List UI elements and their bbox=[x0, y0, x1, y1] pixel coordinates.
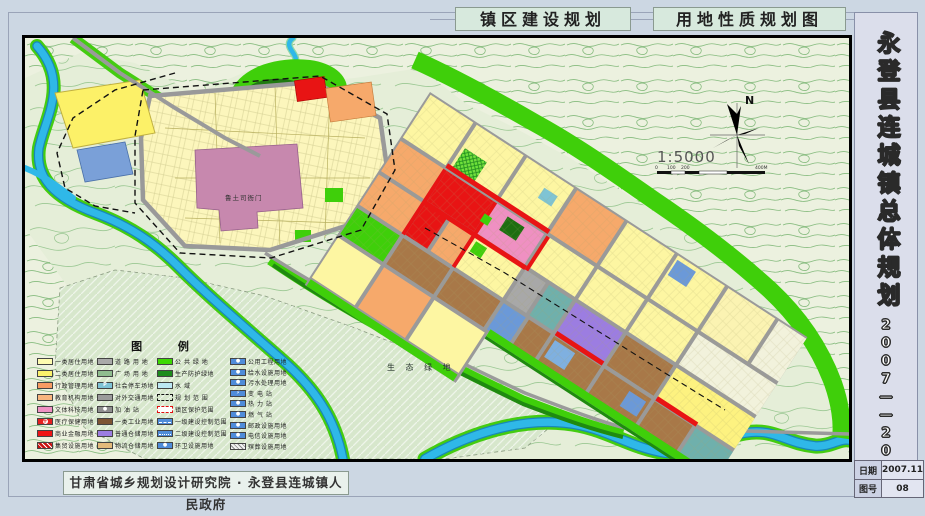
legend-item: +医疗保健用地 bbox=[37, 418, 94, 425]
legend-item: 生产防护绿地 bbox=[157, 370, 227, 377]
planning-map: 鲁土司衙门 bbox=[22, 35, 852, 462]
legend-item-label: 一级建设控制范围 bbox=[175, 417, 227, 426]
legend-item-label: 公用工程用地 bbox=[248, 357, 287, 366]
legend-item: 殡葬设施用地 bbox=[230, 443, 287, 450]
legend-item: ⚡变 电 站 bbox=[230, 390, 287, 397]
legend-item-label: 生产防护绿地 bbox=[175, 369, 214, 378]
legend-item-label: 环卫设施用地 bbox=[175, 441, 214, 450]
legend-item-label: 道 路 用 地 bbox=[115, 357, 148, 366]
legend-item-label: 普通仓储用地 bbox=[115, 429, 154, 438]
legend-item-label: 商业金融用地 bbox=[55, 429, 94, 438]
legend-swatch bbox=[37, 370, 53, 377]
legend-swatch bbox=[97, 442, 113, 449]
legend-swatch bbox=[37, 358, 53, 365]
legend-item-label: 加 油 站 bbox=[115, 405, 139, 414]
legend-item-label: 热 力 站 bbox=[248, 399, 272, 408]
legend-item-label: 教育机构用地 bbox=[55, 393, 94, 402]
legend-item-label: 广 场 用 地 bbox=[115, 369, 148, 378]
legend-item-label: 文体科技用地 bbox=[55, 405, 94, 414]
legend-item: 一类工业用地 bbox=[97, 418, 154, 425]
legend-item-label: 镇区保护范围 bbox=[175, 405, 214, 414]
legend-swatch: P bbox=[97, 382, 113, 389]
legend-item: ●电信设施用地 bbox=[230, 432, 287, 439]
legend-item-label: 邮政设施用地 bbox=[248, 421, 287, 430]
legend-item: 物流仓储用地 bbox=[97, 442, 154, 449]
legend-item: 普通仓储用地 bbox=[97, 430, 154, 437]
legend-swatch bbox=[230, 443, 246, 450]
legend-item-label: 公 共 绿 地 bbox=[175, 357, 208, 366]
legend-item-label: 对外交通用地 bbox=[115, 393, 154, 402]
legend-item: 二类居住用地 bbox=[37, 370, 94, 377]
plan-sheet: { "header": { "title1": "镇区建设规划", "title… bbox=[0, 0, 925, 500]
legend-item: 镇区保护范围 bbox=[157, 406, 227, 413]
plan-title-vertical: 永登县连城镇总体规划 bbox=[869, 31, 903, 311]
legend-swatch bbox=[37, 442, 53, 449]
sheet-title-left: 镇区建设规划 bbox=[455, 7, 631, 31]
legend-item-label: 医疗保健用地 bbox=[55, 417, 94, 426]
legend-item: 教育机构用地 bbox=[37, 394, 94, 401]
legend-swatch: + bbox=[37, 418, 53, 425]
legend-swatch: ● bbox=[230, 369, 246, 376]
heritage-label: 鲁土司衙门 bbox=[225, 193, 263, 202]
sheet-title-right: 用地性质规划图 bbox=[653, 7, 846, 31]
legend-swatch bbox=[97, 430, 113, 437]
legend-item: 二级建设控制范围 bbox=[157, 430, 227, 437]
legend-item: 规 划 范 围 bbox=[157, 394, 227, 401]
legend-swatch bbox=[97, 358, 113, 365]
legend-columns: 一类居住用地二类居住用地行政管理用地教育机构用地文体科技用地+医疗保健用地商业金… bbox=[37, 358, 283, 454]
legend-item: 水 域 bbox=[157, 382, 227, 389]
legend-swatch bbox=[97, 394, 113, 401]
legend-swatch: ● bbox=[97, 406, 113, 413]
legend-item: ●公用工程用地 bbox=[230, 358, 287, 365]
legend-item-label: 变 电 站 bbox=[248, 389, 272, 398]
legend-swatch bbox=[157, 370, 173, 377]
legend: 图 例 一类居住用地二类居住用地行政管理用地教育机构用地文体科技用地+医疗保健用… bbox=[37, 338, 283, 454]
legend-item: 集贸设施用地 bbox=[37, 442, 94, 449]
legend-item: ●邮政设施用地 bbox=[230, 422, 287, 429]
svg-text:0: 0 bbox=[655, 165, 658, 171]
legend-item: 行政管理用地 bbox=[37, 382, 94, 389]
legend-swatch bbox=[37, 406, 53, 413]
legend-column: 一类居住用地二类居住用地行政管理用地教育机构用地文体科技用地+医疗保健用地商业金… bbox=[37, 358, 94, 454]
legend-item: 商业金融用地 bbox=[37, 430, 94, 437]
legend-column: ●公用工程用地●给水设施用地●污水处理用地⚡变 电 站●热 力 站●燃 气 站●… bbox=[230, 358, 287, 454]
svg-text:200: 200 bbox=[681, 165, 690, 171]
legend-item-label: 二级建设控制范围 bbox=[175, 429, 227, 438]
legend-item-label: 集贸设施用地 bbox=[55, 441, 94, 450]
legend-item-label: 社会停车场地 bbox=[115, 381, 154, 390]
date-value: 2007.11 bbox=[881, 460, 924, 479]
legend-item: P社会停车场地 bbox=[97, 382, 154, 389]
eco-green-label: 生 态 绿 地 bbox=[387, 362, 455, 372]
legend-swatch bbox=[37, 394, 53, 401]
legend-item-label: 污水处理用地 bbox=[248, 378, 287, 387]
legend-item-label: 规 划 范 围 bbox=[175, 393, 208, 402]
legend-swatch bbox=[157, 358, 173, 365]
legend-swatch bbox=[157, 394, 173, 401]
legend-swatch bbox=[37, 430, 53, 437]
sheet-info-table: 日期 2007.11 图号 08 bbox=[854, 460, 918, 498]
legend-item: 一级建设控制范围 bbox=[157, 418, 227, 425]
sheet-number-label: 图号 bbox=[854, 479, 881, 498]
legend-swatch: ● bbox=[157, 442, 173, 449]
legend-title: 图 例 bbox=[37, 338, 283, 354]
legend-item-label: 物流仓储用地 bbox=[115, 441, 154, 450]
legend-swatch: ● bbox=[230, 422, 246, 429]
legend-item: ●污水处理用地 bbox=[230, 379, 287, 386]
date-label: 日期 bbox=[854, 460, 881, 479]
legend-swatch bbox=[157, 382, 173, 389]
scale-ratio: 1:5000 bbox=[657, 148, 716, 166]
legend-item-label: 殡葬设施用地 bbox=[248, 442, 287, 451]
legend-item-label: 二类居住用地 bbox=[55, 369, 94, 378]
legend-swatch: ● bbox=[230, 358, 246, 365]
legend-swatch bbox=[97, 370, 113, 377]
legend-column: 公 共 绿 地生产防护绿地水 域规 划 范 围镇区保护范围一级建设控制范围二级建… bbox=[157, 358, 227, 454]
legend-swatch bbox=[157, 406, 173, 413]
sheet-number-value: 08 bbox=[881, 479, 924, 498]
legend-item: 道 路 用 地 bbox=[97, 358, 154, 365]
legend-item-label: 一类工业用地 bbox=[115, 417, 154, 426]
legend-item: 一类居住用地 bbox=[37, 358, 94, 365]
legend-swatch bbox=[97, 418, 113, 425]
legend-swatch: ● bbox=[230, 400, 246, 407]
legend-swatch bbox=[157, 418, 173, 425]
legend-column: 道 路 用 地广 场 用 地P社会停车场地对外交通用地●加 油 站一类工业用地普… bbox=[97, 358, 154, 454]
legend-swatch bbox=[157, 430, 173, 437]
legend-item: ●热 力 站 bbox=[230, 400, 287, 407]
legend-item-label: 电信设施用地 bbox=[248, 431, 287, 440]
legend-swatch: ⚡ bbox=[230, 390, 246, 397]
legend-swatch: ● bbox=[230, 411, 246, 418]
legend-item: ●燃 气 站 bbox=[230, 411, 287, 418]
legend-item: 文体科技用地 bbox=[37, 406, 94, 413]
legend-item: ●给水设施用地 bbox=[230, 369, 287, 376]
legend-item-label: 给水设施用地 bbox=[248, 368, 287, 377]
legend-item-label: 一类居住用地 bbox=[55, 357, 94, 366]
svg-text:400M: 400M bbox=[755, 165, 768, 171]
legend-item-label: 燃 气 站 bbox=[248, 410, 272, 419]
legend-item: ●环卫设施用地 bbox=[157, 442, 227, 449]
legend-item-label: 水 域 bbox=[175, 381, 190, 390]
legend-item: 公 共 绿 地 bbox=[157, 358, 227, 365]
legend-item: 广 场 用 地 bbox=[97, 370, 154, 377]
legend-swatch: ● bbox=[230, 432, 246, 439]
north-label: N bbox=[745, 94, 754, 107]
title-sidebar: 永登县连城镇总体规划 2007——2020 日期 2007.11 图号 08 bbox=[854, 12, 918, 498]
legend-item: 对外交通用地 bbox=[97, 394, 154, 401]
legend-item: ●加 油 站 bbox=[97, 406, 154, 413]
legend-swatch bbox=[37, 382, 53, 389]
attribution: 甘肃省城乡规划设计研究院 · 永登县连城镇人民政府 bbox=[63, 471, 349, 495]
legend-swatch: ● bbox=[230, 379, 246, 386]
legend-item-label: 行政管理用地 bbox=[55, 381, 94, 390]
svg-text:100: 100 bbox=[667, 165, 676, 171]
